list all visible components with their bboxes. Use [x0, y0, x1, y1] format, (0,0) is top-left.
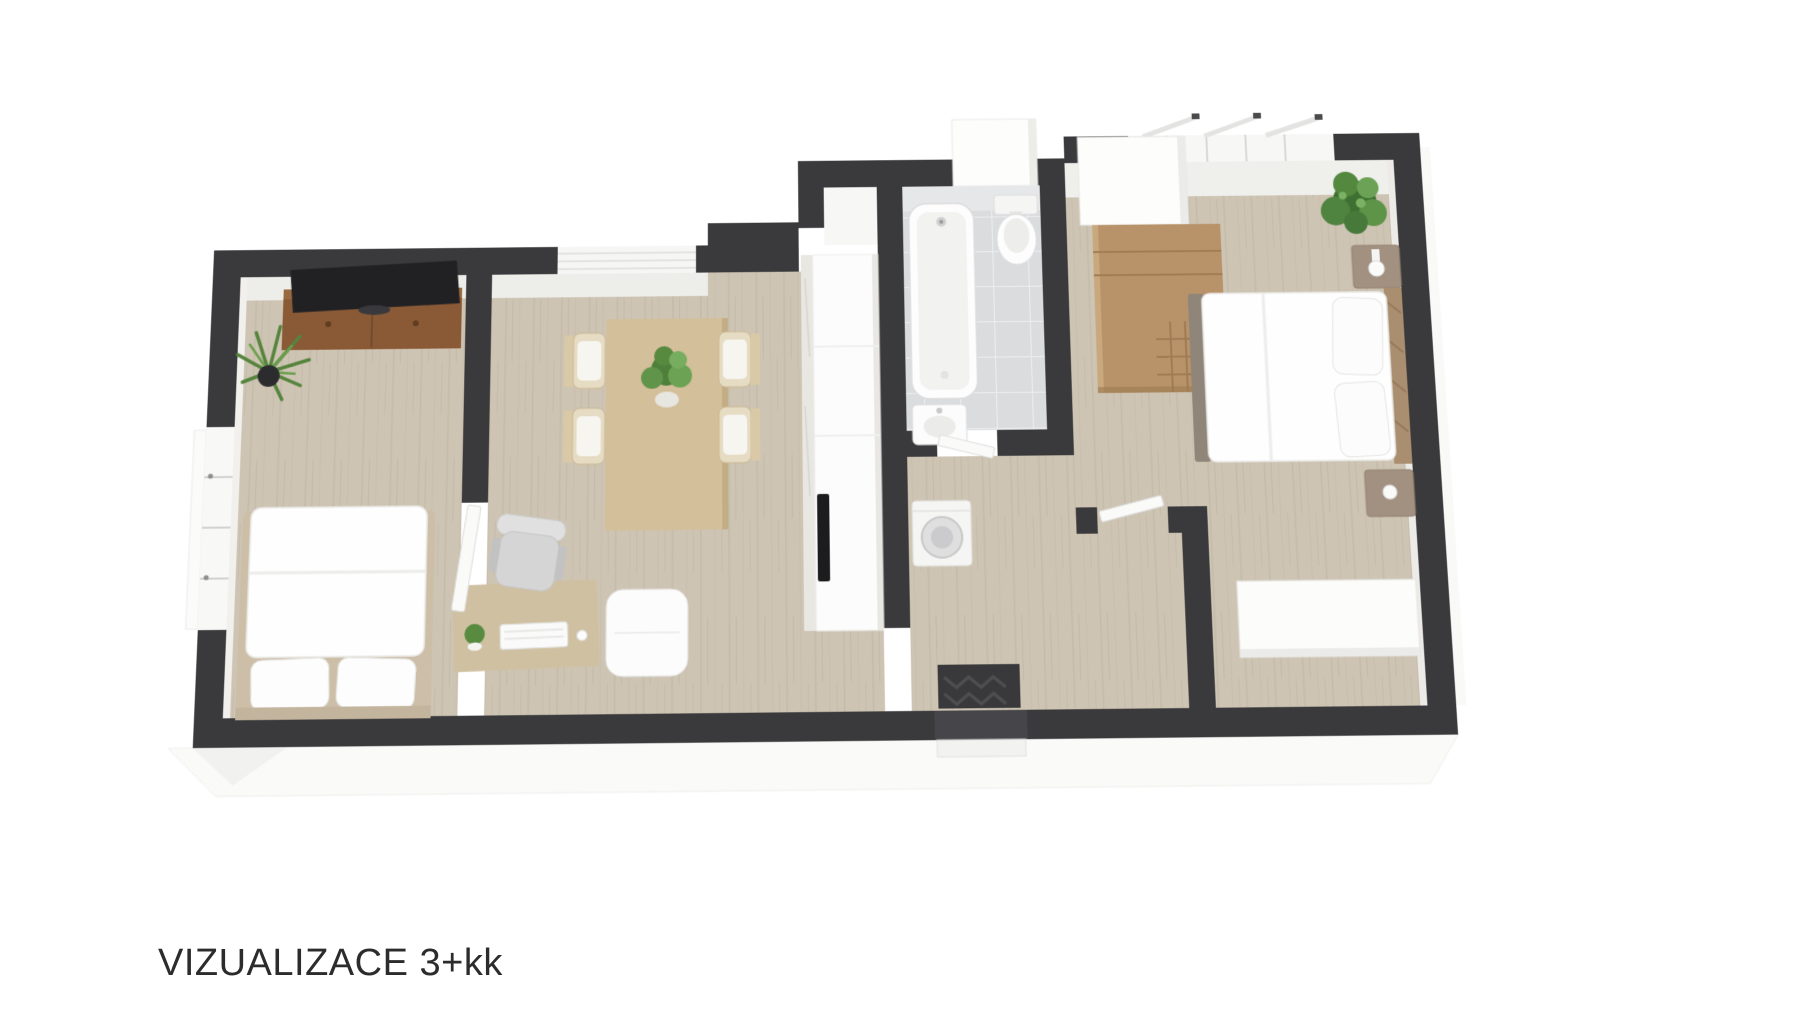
- dresser: [1237, 579, 1421, 657]
- white-cabinet-block: [952, 119, 1038, 186]
- lamp-icon: [1368, 261, 1385, 277]
- open-window-sash-icons: [1142, 112, 1324, 137]
- bathtub: [908, 203, 978, 399]
- visualization-caption: VIZUALIZACE 3+kk: [158, 942, 503, 985]
- desk: [452, 579, 599, 672]
- entrance-opening: [934, 710, 1027, 740]
- bed-right: [1188, 288, 1413, 466]
- entrance-step: [937, 739, 1026, 757]
- tall-cabinet: [1077, 136, 1188, 225]
- pouf: [606, 589, 688, 677]
- cooktop: [817, 494, 830, 582]
- window-left: [186, 427, 235, 630]
- mouse: [577, 630, 587, 641]
- nightstand-bottom: [1364, 470, 1415, 517]
- floorplan-3d-render: [149, 109, 1495, 809]
- floorplan-svg: [149, 109, 1495, 809]
- toilet: [994, 195, 1039, 265]
- lamp-icon: [1382, 485, 1397, 499]
- washing-machine: [912, 501, 972, 567]
- bed-left: [235, 506, 435, 720]
- nightstand-top: [1351, 245, 1401, 288]
- window-dining: [557, 246, 696, 275]
- floorplan-visualization-page: VIZUALIZACE 3+kk: [0, 0, 1800, 1013]
- kitchen-counter: [801, 254, 884, 631]
